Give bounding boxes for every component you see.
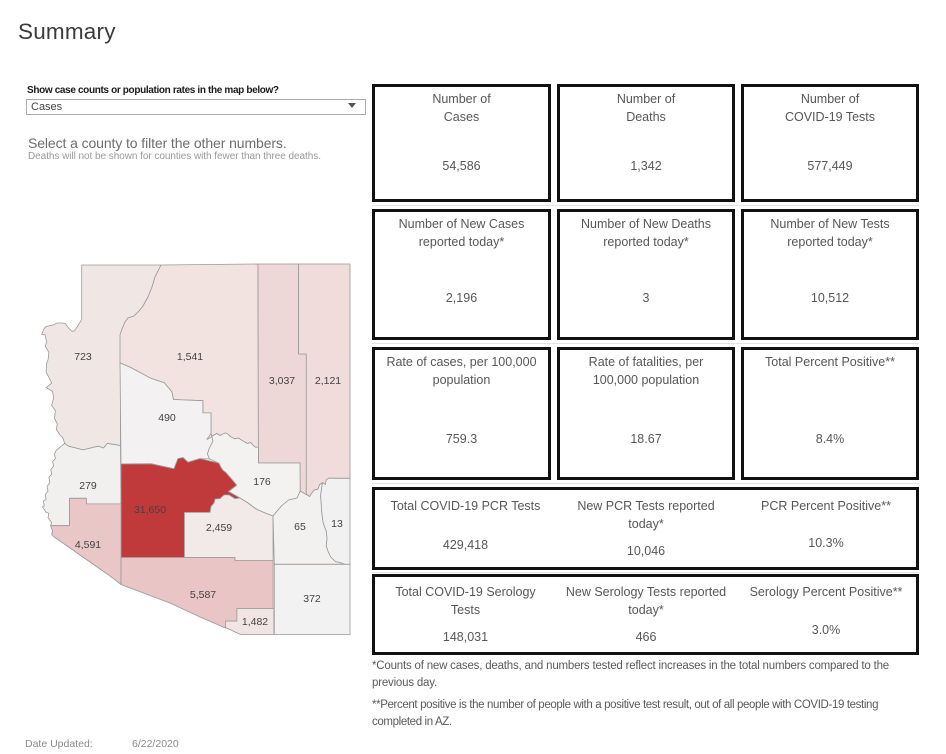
- svg-text:31,650: 31,650: [134, 504, 166, 516]
- svg-text:3,037: 3,037: [269, 375, 295, 387]
- svg-text:1,541: 1,541: [177, 351, 203, 363]
- svg-text:176: 176: [253, 476, 271, 488]
- svg-text:279: 279: [79, 480, 97, 492]
- svg-text:65: 65: [294, 521, 306, 533]
- svg-text:723: 723: [74, 351, 92, 363]
- svg-text:2,121: 2,121: [315, 375, 341, 387]
- svg-text:490: 490: [158, 412, 176, 424]
- svg-text:4,591: 4,591: [75, 539, 101, 551]
- svg-text:372: 372: [303, 593, 321, 605]
- svg-text:13: 13: [331, 518, 343, 530]
- svg-text:2,459: 2,459: [206, 522, 232, 534]
- svg-text:5,587: 5,587: [190, 589, 216, 601]
- svg-text:1,482: 1,482: [242, 616, 268, 628]
